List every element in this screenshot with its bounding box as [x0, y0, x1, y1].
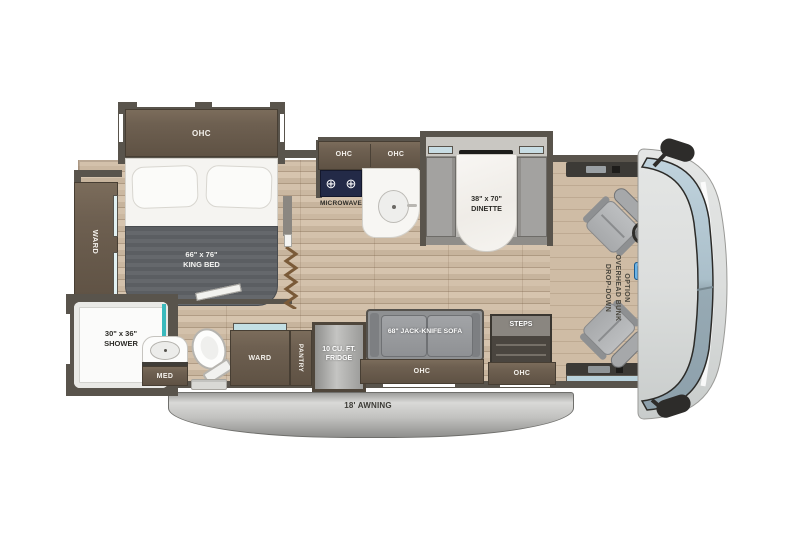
med-label: MED [157, 373, 174, 380]
bed-slide-window-side-l [119, 114, 123, 142]
shower-window [66, 314, 70, 364]
pantry-label: PANTRY [295, 328, 307, 388]
sofa-ohc-label: OHC [414, 368, 431, 375]
bath-door-panel [284, 234, 292, 247]
microwave-label: MICROWAVE [306, 200, 376, 207]
sink-kitchen-drain [392, 205, 396, 209]
kitchen-ohc-right-label: OHC [370, 148, 422, 160]
pillow-right [205, 165, 272, 209]
dinette-label: 38" x 70" DINETTE [456, 190, 517, 218]
accordion-door-icon [283, 247, 299, 309]
faucet-icon [407, 204, 417, 207]
ward-left-label: WARD [90, 197, 102, 287]
rv-floorplan: 18' AWNING OHC 66" x 76" KING BED WARD [0, 0, 800, 545]
dinette-window-left [428, 146, 453, 154]
bed-slide-window-right [212, 102, 270, 107]
fridge-label: 10 CU. FT. FRIDGE [312, 340, 366, 368]
bed-slide-window-left [137, 102, 195, 107]
sink-drain-dot [164, 349, 167, 352]
wall-top-left-stub [74, 170, 122, 177]
king-bed-size: 66" x 76" [185, 250, 217, 260]
bath-wall-stub [283, 196, 292, 236]
bed-slide-window-side-r [280, 114, 284, 142]
king-bed-name: KING BED [183, 260, 220, 270]
kitchen-ohc-left-label: OHC [318, 148, 370, 160]
ward-bottom-label: WARD [249, 355, 272, 362]
bed-ohc-cabinet: OHC [125, 109, 278, 157]
burner-icon: ⊕ [326, 176, 337, 192]
shower-name: SHOWER [104, 339, 138, 349]
med-cabinet: MED [142, 366, 188, 386]
cab-front [520, 120, 780, 440]
shower-size: 30" x 36" [105, 329, 137, 339]
bed-ohc-label: OHC [192, 129, 211, 138]
dinette-size: 38" x 70" [471, 194, 502, 204]
awning [168, 392, 574, 438]
dinette-name: DINETTE [471, 204, 502, 214]
awning-label: 18' AWNING [268, 401, 468, 410]
king-bed-label: 66" x 76" KING BED [125, 248, 278, 272]
cooktop: ⊕⊕ [320, 170, 362, 197]
burner-icon: ⊕ [346, 176, 357, 192]
bath-mat [191, 379, 227, 390]
dinette-bench-left [426, 157, 456, 237]
sofa-label: 68" JACK-KNIFE SOFA [366, 325, 484, 337]
ward-mirror-bottom [113, 252, 118, 296]
toilet [190, 326, 234, 382]
ward-mirror-top [113, 195, 118, 237]
pillow-left [131, 165, 198, 209]
ward-bottom-cabinet: WARD [230, 330, 290, 386]
sofa-ohc-cabinet: OHC [360, 359, 484, 384]
